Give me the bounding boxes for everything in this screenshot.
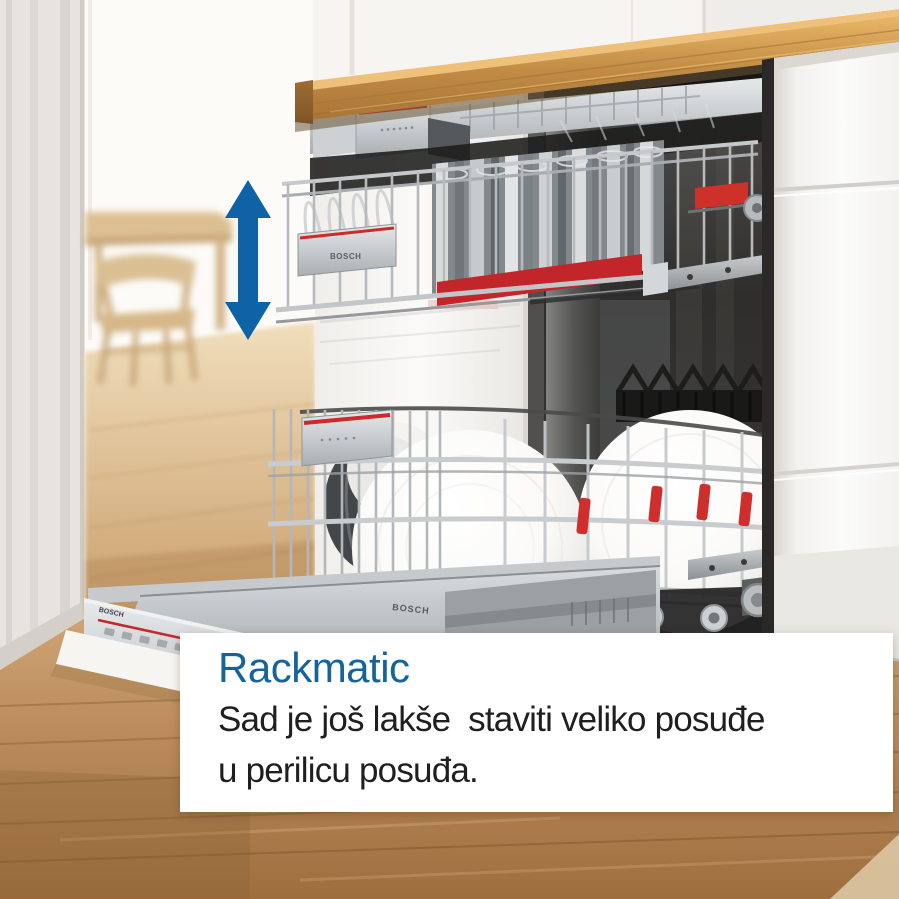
caption-line-2: u perilicu posuđa. — [218, 745, 893, 796]
caption-line-1: Sad je još lakše staviti veliko posuđe — [218, 694, 893, 745]
window-light — [85, 0, 315, 360]
bosch-logo: BOSCH — [330, 252, 361, 261]
feature-title: Rackmatic — [218, 642, 893, 694]
counter-end — [295, 80, 313, 124]
left-wall-doorframe — [0, 0, 85, 668]
caption-panel: Rackmatic Sad je još lakše staviti velik… — [180, 633, 893, 812]
product-photo-scene: BOSCH — [0, 0, 899, 899]
right-cabinet — [762, 42, 899, 660]
